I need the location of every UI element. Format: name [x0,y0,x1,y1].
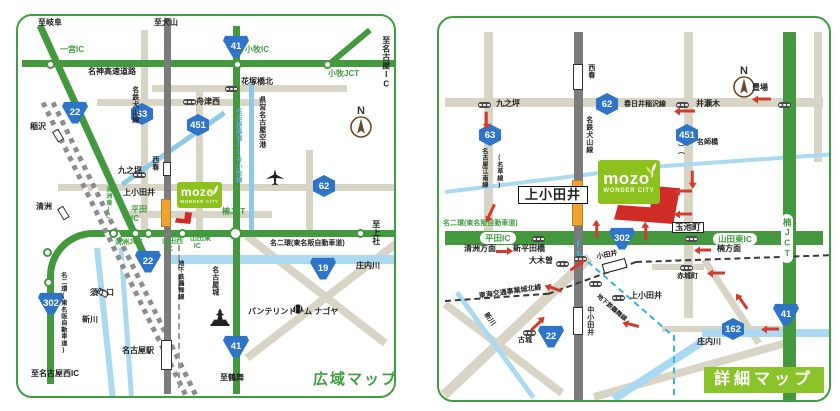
route451-badge: 451 [675,124,699,146]
kunotsubo: 九之坪 [496,100,520,109]
nishiharu-station [163,162,171,176]
detail-map-panel: 62634513022216241mozo’WONDER CITYN西春九之坪春… [437,16,831,402]
okiso-signal [556,261,569,267]
kunotsubo: 九之坪 [118,167,142,176]
svg-text:N: N [357,105,365,117]
nishiharu-station [573,64,583,90]
kiyosu-jct: 清洲JCT [115,239,142,247]
kami-otai-big: 上小田井 [518,186,588,204]
nagoya-station: 名古屋駅 [122,347,154,356]
tsurumai-line-3 [673,335,675,395]
toyoba: 豊場 [752,84,768,93]
akashirocho-signal [680,265,693,271]
kami-otai-signal [612,295,625,301]
route-arrow-tamaike-down [691,171,694,184]
mozo-subtitle: WONDER CITY [180,200,219,204]
ichinomiya-ic-circle [46,60,55,69]
komaki-ic: 小牧IC [245,46,269,55]
airplane-icon [265,168,285,188]
johoku-line-3 [636,254,829,263]
ring-circle-2 [356,229,365,238]
kami-otai-station [161,199,171,227]
road-east-vertical [814,32,822,162]
akashirocho: 赤城町 [677,273,698,281]
route-arrow-162 [766,328,779,331]
naka-otai: 中小田井 [586,306,594,336]
to-tsurumai: 至鶴舞 [220,374,244,383]
nagoya-castle-name: 名古屋城 [211,266,219,296]
to-inuyama: 至犬山 [154,19,178,28]
kazuka-bridge-signal [225,86,238,92]
to-nagoya-ic: 至名古屋IC [381,36,390,89]
route-arrow-mozo-in2 [679,213,692,216]
funatsu-nishi: 舟津西 [196,98,220,107]
route-arrow-toyoba [757,98,771,101]
nishiharu: 西春 [151,156,159,171]
tamaikecho-box: 玉池町 [672,222,704,233]
kojo: 古城 [518,337,532,345]
meishi-bridge: 名師橋 [697,139,718,147]
road-vertical-east [306,150,313,234]
route-arrow-302-up1 [595,225,598,238]
meitetsu-inuyama-name: 名鉄犬山線 [585,116,593,154]
meishin-name: 名神高速道路 [88,68,136,77]
road-diagonal-se [245,233,388,347]
kusunoki-jct-circle [229,227,242,240]
kiyosu: 清洲 [36,203,52,212]
bridge-marks-icon: ）（ [676,144,684,155]
kami-otai-crossing: 上小田井 [630,292,662,301]
meishin-expressway [22,60,394,67]
sukaguchi: 須ケ口 [90,289,114,298]
subway-tsurumai-name: 地下鉄鶴舞線 [176,260,183,300]
otai-signal [589,281,602,287]
nagoya-expwy-komaki-line [249,84,254,230]
otai-station [602,258,628,274]
castle-icon [208,301,232,327]
ring-circle-3 [43,248,52,257]
route-arrow-kiyosu-dir [496,250,508,253]
hirata-ic: 平田 IC [131,206,147,224]
to-nagoya-nishi-ic: 至名古屋西IC [31,370,79,379]
expwy-komaki-name: 名古屋高速11号小牧線 [234,108,241,183]
compass-icon: N [731,64,757,100]
route-arrow-mozo-in1 [679,190,692,193]
isegi: 井瀬木 [696,100,720,109]
sprout-leaf-icon [207,183,220,200]
kiyosu-jct-circle [131,229,140,238]
kazuka-bridge-north: 花塚橋北 [241,78,273,87]
shin-hirata-bridge: 新平田橋 [513,245,545,254]
nagoya-airport: 県営名古屋空港 [258,96,266,149]
route19-badge: 19 [310,257,336,280]
wide-map-caption: 広域マップ [313,372,396,389]
route302-badge: 302 [609,227,635,250]
mozo-logo: mozo’WONDER CITY [598,160,660,204]
meinikan-name-vert: 名二環(東名阪自動車道) [59,272,66,354]
hirata-ic-circle [144,229,153,238]
komaki-jct: 小牧JCT [328,70,359,79]
detail-map-caption: 詳細マップ [704,367,824,393]
kiyosu-higashi-ic: 清洲東IC [104,186,111,221]
yamada-nishi-ic-circle [178,229,187,238]
vantelin-dome: バンテリンドーム ナゴヤ [248,308,338,317]
okiso: 大木曽 [529,257,553,266]
kasugai-inazawa-name: 春日井稲沢線 [624,101,666,109]
route22-badge-south: 22 [135,250,161,273]
komaki-ic-circle [233,60,242,69]
akashiro-street [652,264,704,270]
hirata-ic-pill: 平田IC [480,232,516,244]
toyoba-signal [778,102,791,108]
johoku-line-name: 東海交通事業城北線 [478,284,541,300]
ring-circle-1 [109,229,118,238]
kiyosu-station [57,206,70,221]
route22-badge: 22 [538,325,564,348]
ring-circle-4 [44,278,53,287]
route62-badge: 62 [312,175,336,197]
mozo-subtitle: WONDER CITY [603,189,654,195]
svg-text:N: N [740,65,748,77]
route-arrow-shonai [627,322,639,328]
meitetsu-inuyama-name: 名鉄犬山線 [131,86,139,124]
yamada-higashi-ic: 山田東 IC [190,235,211,250]
kusunoki-direction: 楠方面 [717,245,741,254]
yamada-nishi-ic: 山田西 IC [162,238,183,253]
route-arrow-kusunoki-dir [699,249,711,252]
ichinomiya-ic: 一宮IC [60,46,84,55]
sprout-leaf-icon [645,161,658,178]
kusunoki-jct: 楠JCT [222,208,245,217]
meiso-line: (名草線) [495,154,502,189]
kiyosu-direction: 清洲方面 [464,245,496,254]
tamaikecho-signal [685,236,698,242]
route-arrow-isegi [679,110,695,113]
komaki-jct-circle [323,60,332,69]
to-jousha: 至上社 [371,220,380,246]
funatsu-nishi-signal [183,99,196,105]
naka-otai-station [573,307,583,335]
mozo-logo: mozo’WONDER CITY [177,182,222,208]
nagoya-konan-line: 名古屋江南線 [480,148,487,188]
wide-area-map-panel: 22634145162223021941mozo’WONDER CITYN至岐阜… [16,14,396,398]
route62-badge: 62 [595,93,619,115]
shinkawa-name: 新川 [82,316,98,325]
shinkawa-river [455,291,535,399]
to-gifu: 至岐阜 [38,19,62,28]
shonai-river-name: 庄内川 [697,338,721,347]
kusunoki-jct-pill: 楠JCT [781,214,793,263]
kami-otai: 上小田井 [123,189,155,198]
nagoya-station-rect [161,340,172,370]
inazawa: 稲沢 [30,123,46,132]
meinikan-name: 名二環(東名阪自動車道) [443,220,518,228]
route-arrow-kunotsubo [485,112,488,125]
route-arrow-302-up2 [644,227,647,240]
nishiharu: 西春 [587,64,595,79]
shonai-river-name: 庄内川 [356,262,380,271]
hirata-east-signal [532,236,545,242]
compass-icon: N [348,104,374,140]
kojo-signal [523,330,536,336]
route-arrow-akashiro [712,272,725,275]
meinikan-name: 名二環(東名阪自動車道) [270,240,345,248]
kunotsubo-signal [478,102,491,108]
